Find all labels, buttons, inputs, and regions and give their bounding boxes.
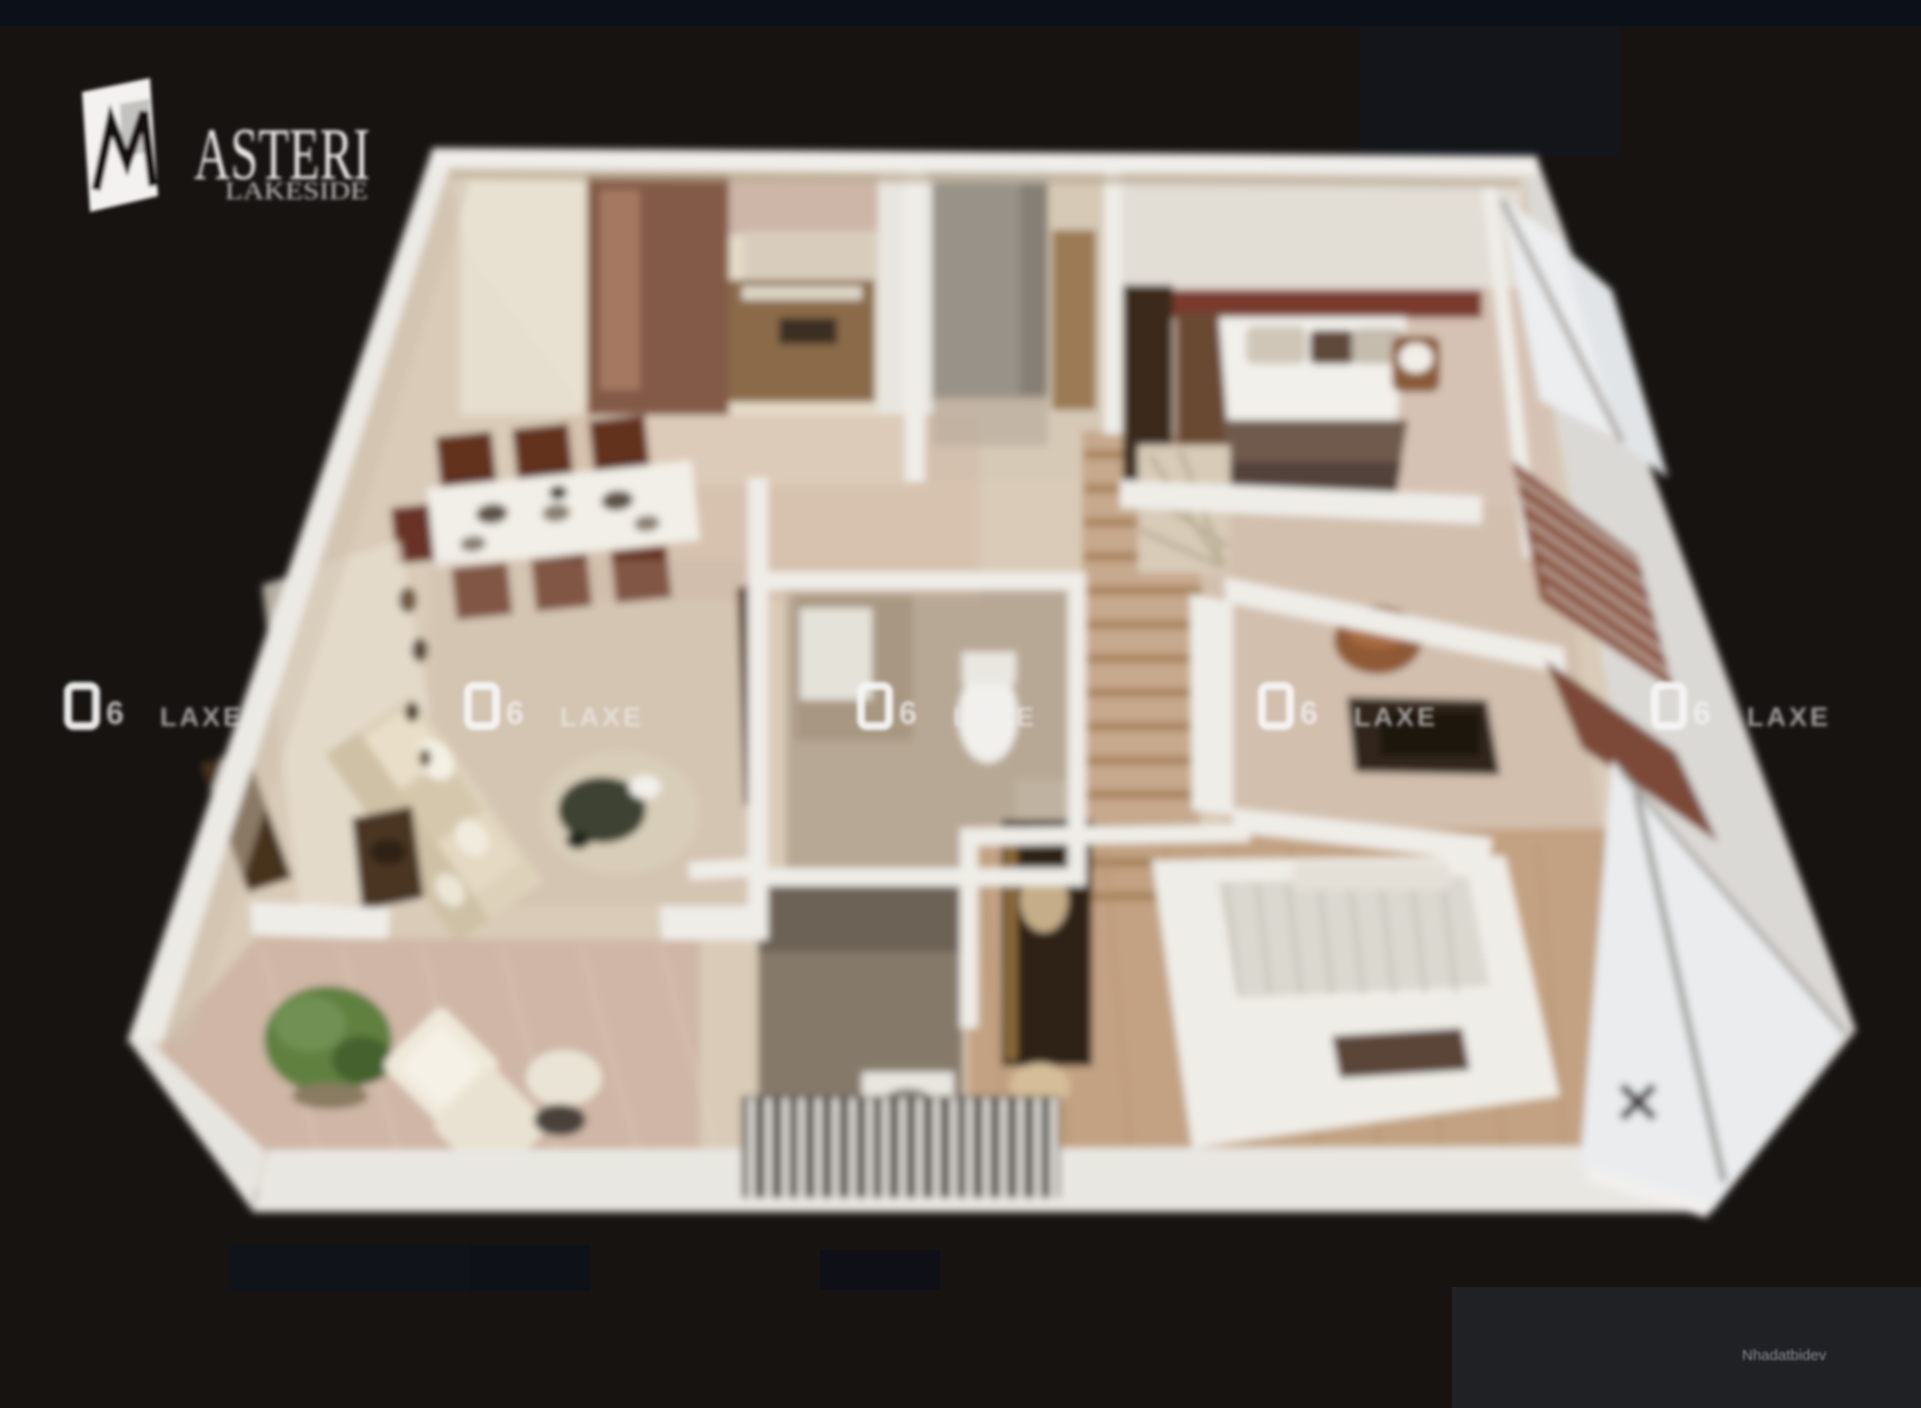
svg-text:LAXE: LAXE xyxy=(1354,702,1438,732)
svg-text:LAXE: LAXE xyxy=(1747,702,1831,732)
svg-text:LAKESIDE: LAKESIDE xyxy=(225,178,368,205)
svg-text:6: 6 xyxy=(106,695,124,731)
svg-text:6: 6 xyxy=(506,695,524,731)
svg-text:Nhadatbidev: Nhadatbidev xyxy=(1742,1347,1827,1364)
svg-text:LAXE: LAXE xyxy=(560,702,644,732)
svg-text:6: 6 xyxy=(899,695,917,731)
svg-text:6: 6 xyxy=(1693,695,1711,731)
svg-text:LAXE: LAXE xyxy=(953,702,1037,732)
svg-text:6: 6 xyxy=(1300,695,1318,731)
svg-text:LAXE: LAXE xyxy=(160,702,244,732)
